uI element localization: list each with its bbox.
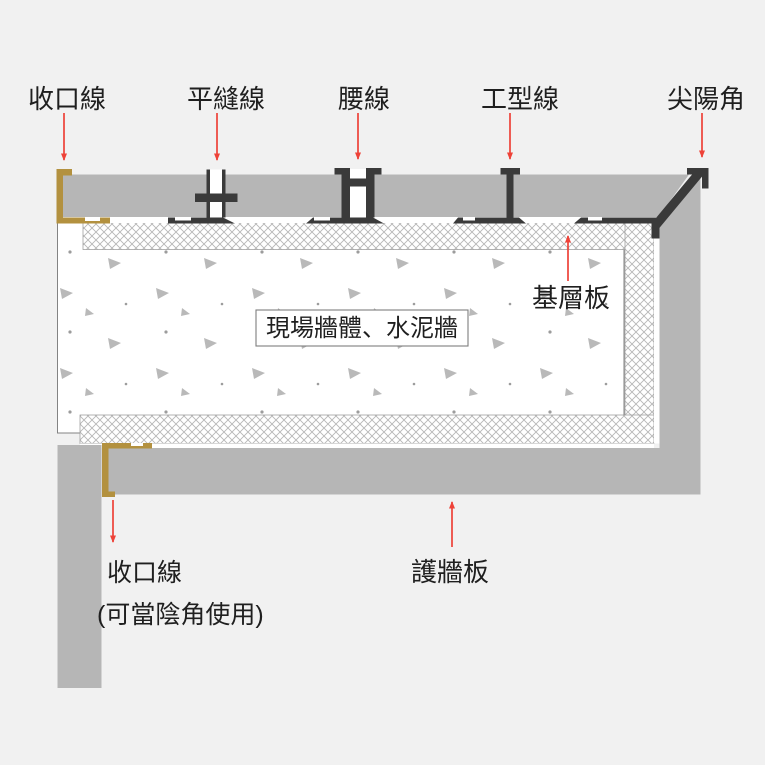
- label-base-board: 基層板: [532, 283, 610, 313]
- label-sharp-corner-trim: 尖陽角: [667, 84, 745, 114]
- wall-panel-top: [63, 175, 689, 218]
- label-waist-trim: 腰線: [338, 84, 390, 114]
- gap-bottom: [80, 444, 654, 449]
- label-i-type-trim: 工型線: [481, 84, 559, 114]
- label-closing-trim-top: 收口線: [28, 84, 106, 114]
- clip-plate-4: [574, 218, 658, 224]
- base-board-hatch-right: [625, 223, 654, 444]
- diagram-stage: 收口線 平縫線 腰線 工型線 尖陽角 基層板 現場牆體、水泥牆 收口線 (可當陰…: [0, 0, 765, 765]
- wall-return-left: [58, 445, 102, 688]
- label-flat-seam-trim: 平縫線: [187, 84, 265, 114]
- wall-panel-right: [660, 176, 701, 495]
- waist-trim-profile: [335, 168, 382, 218]
- clip-plate-3: [453, 218, 526, 224]
- label-closing-trim-bottom: 收口線: [107, 559, 182, 587]
- wall-panel-bottom: [107, 448, 701, 495]
- label-closing-trim-bottom-note: (可當陰角使用): [97, 601, 264, 629]
- wall-section-diagram: 收口線 平縫線 腰線 工型線 尖陽角 基層板 現場牆體、水泥牆 收口線 (可當陰…: [0, 0, 765, 765]
- gap-right: [654, 223, 660, 444]
- label-site-wall: 現場牆體、水泥牆: [266, 315, 458, 342]
- base-board-hatch-bottom: [80, 415, 654, 444]
- clip-plate-2: [306, 218, 384, 224]
- label-wall-panel: 護牆板: [411, 557, 489, 587]
